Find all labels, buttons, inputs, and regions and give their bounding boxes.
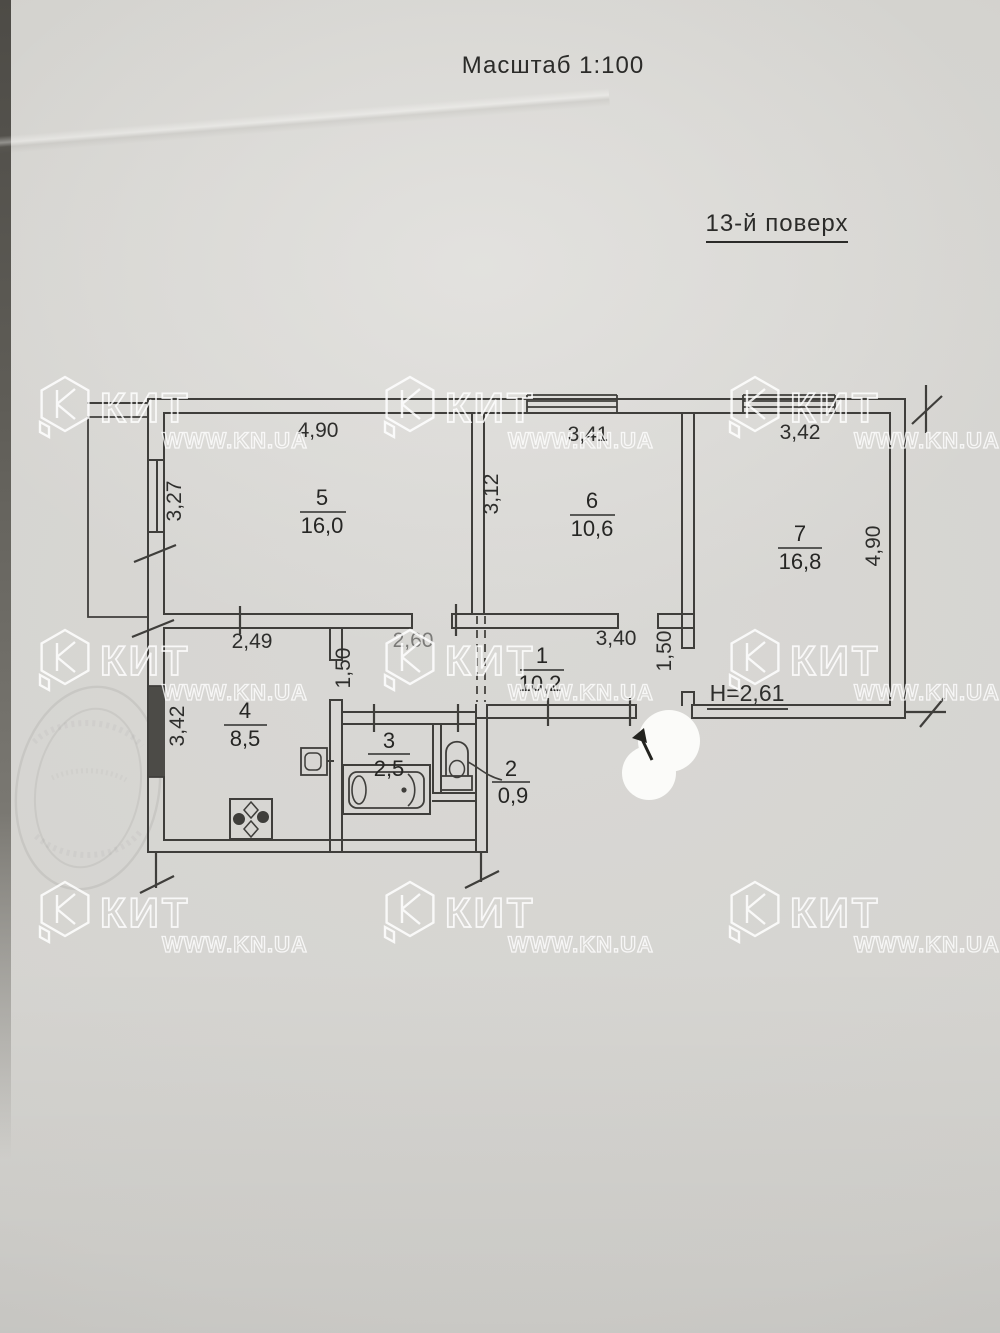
kn-ua-watermark bbox=[508, 680, 654, 705]
floor-label: 13-й поверх bbox=[705, 210, 848, 237]
ceiling-height-note: Н=2,61 bbox=[710, 680, 785, 706]
room3-number: 3 bbox=[383, 728, 395, 753]
dim-room6-depth: 3,12 bbox=[480, 474, 503, 515]
window-room5 bbox=[148, 460, 164, 532]
kn-ua-watermark bbox=[162, 680, 308, 705]
room3-area: 2,5 bbox=[374, 756, 405, 781]
walls bbox=[88, 399, 905, 852]
scanned-floor-plan-page: КИТ WWW.KN.UA bbox=[0, 0, 1000, 1333]
kn-ua-watermark bbox=[854, 428, 1000, 453]
room6-number: 6 bbox=[586, 488, 598, 513]
kn-ua-watermark bbox=[854, 932, 1000, 957]
room7-area: 16,8 bbox=[779, 549, 822, 574]
kn-ua-watermark bbox=[508, 428, 654, 453]
stove bbox=[230, 799, 272, 839]
room6-area: 10,6 bbox=[571, 516, 614, 541]
dim-kitchen-width: 2,49 bbox=[232, 630, 273, 653]
watermarks bbox=[40, 377, 1000, 957]
window-room6 bbox=[527, 395, 617, 413]
room2-number: 2 bbox=[505, 756, 517, 781]
dim-room5-depth: 3,27 bbox=[163, 481, 186, 522]
kn-ua-watermark bbox=[508, 932, 654, 957]
room5-area: 16,0 bbox=[301, 513, 344, 538]
room1-number: 1 bbox=[536, 643, 548, 668]
dim-kitchen-depth: 3,42 bbox=[166, 706, 189, 747]
room4-area: 8,5 bbox=[230, 726, 261, 751]
room2-area: 0,9 bbox=[498, 783, 529, 808]
floor-plan-drawing: КИТ WWW.KN.UA bbox=[0, 0, 1000, 1333]
kn-ua-watermark bbox=[162, 428, 308, 453]
scan-edge-shadow bbox=[0, 0, 11, 1160]
room7-number: 7 bbox=[794, 521, 806, 546]
kn-ua-watermark bbox=[854, 680, 1000, 705]
titles: Масштаб 1:100 13-й поверх bbox=[462, 52, 849, 242]
balcony bbox=[88, 417, 148, 617]
toilet-label-leader bbox=[468, 762, 502, 780]
dim-hall-segment-b: 3,40 bbox=[596, 627, 637, 650]
toilet bbox=[441, 742, 472, 790]
dim-hall-width-a: 1,50 bbox=[332, 648, 355, 689]
page-title: Масштаб 1:100 bbox=[462, 52, 644, 79]
room5-number: 5 bbox=[316, 485, 328, 510]
kn-ua-watermark bbox=[162, 932, 308, 957]
dim-room7-depth: 4,90 bbox=[862, 526, 885, 567]
dim-hall-width-b: 1,50 bbox=[653, 631, 676, 672]
correction-blob bbox=[622, 710, 700, 800]
